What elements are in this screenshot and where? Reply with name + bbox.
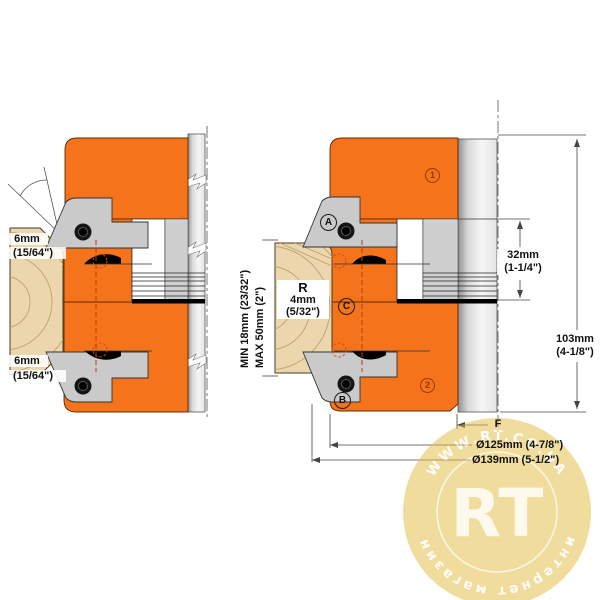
dim-cutting-diameter-min: Ø125mm (4-7/8") <box>476 439 563 451</box>
watermark-initials: RT <box>451 475 544 552</box>
stock-thickness-range: MIN 18mm (23/32") MAX 50mm (2") <box>238 228 268 368</box>
chamfer-depth-bottom-value: 6mm <box>6 355 48 367</box>
dim-bore-section-fraction: (1-1/4") <box>497 262 549 275</box>
dim-f-label: F <box>490 418 506 430</box>
chamfer-depth-top-fraction: (15/64") <box>0 247 66 259</box>
cutterhead-technical-drawing: RT WWW.RT.CO.UA интернет магазин 6mm (15… <box>0 0 600 600</box>
cutter-position-1: 1 <box>425 168 440 183</box>
spindle-right <box>458 100 498 432</box>
stock-max-label: MAX 50mm (2") <box>253 228 268 368</box>
dim-bore-section-value: 32mm <box>497 249 549 262</box>
dim-overall: 103mm (4-1/8") <box>550 333 600 359</box>
dim-cutting-diameter-max: Ø139mm (5-1/2") <box>472 454 559 466</box>
shim-stack <box>397 299 497 304</box>
dim-overall-fraction: (4-1/8") <box>550 346 600 359</box>
chamfer-angle-indicator <box>8 167 59 233</box>
chamfer-depth-bottom-fraction: (15/64") <box>0 370 66 382</box>
radius-label: R 4mm (5/32") <box>277 280 329 319</box>
stock-min-label: MIN 18mm (23/32") <box>238 228 253 368</box>
shim-stack <box>132 299 205 304</box>
dim-overall-value: 103mm <box>550 333 600 346</box>
dim-bore-section: 32mm (1-1/4") <box>497 249 549 275</box>
cutter-position-2: 2 <box>420 378 435 393</box>
callout-b: B <box>334 392 351 409</box>
radius-label-value: 4mm <box>279 294 327 306</box>
chamfer-depth-top-value: 6mm <box>6 233 48 245</box>
callout-c: C <box>338 298 355 315</box>
radius-label-r: R <box>279 281 327 294</box>
radius-label-fraction: (5/32") <box>279 306 327 318</box>
callout-a: A <box>320 214 337 231</box>
right-cutterhead-section <box>168 100 498 432</box>
